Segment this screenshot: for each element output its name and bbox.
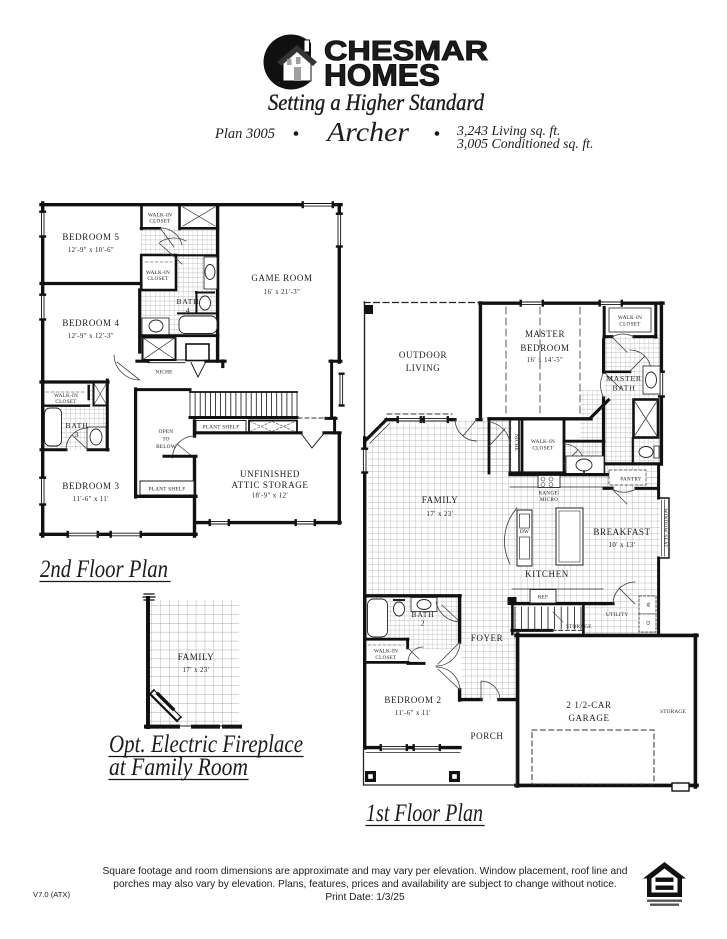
svg-text:LIVING: LIVING [406,363,441,373]
svg-text:D: D [645,621,651,625]
svg-text:GAME ROOM: GAME ROOM [251,273,312,283]
svg-text:BELOW: BELOW [156,444,176,450]
svg-text:BEDROOM: BEDROOM [520,343,569,353]
svg-text:TO: TO [162,437,169,443]
svg-text:W: W [645,602,651,607]
svg-text:17′ x 23′: 17′ x 23′ [427,511,454,518]
svg-text:PORCH: PORCH [470,731,503,741]
svg-text:BEDROOM 4: BEDROOM 4 [62,318,119,328]
svg-text:NICHE: NICHE [513,434,519,451]
svg-text:2: 2 [421,619,426,628]
svg-text:NICHE: NICHE [155,370,172,376]
svg-text:16′ x 14′-5″: 16′ x 14′-5″ [527,357,564,364]
svg-text:2nd Floor Plan: 2nd Floor Plan [40,556,168,583]
svg-text:Archer: Archer [325,117,410,147]
svg-text:BREAKFAST: BREAKFAST [593,527,650,537]
svg-text:GARAGE: GARAGE [568,713,609,723]
svg-text:11′-6″ x 11′: 11′-6″ x 11′ [73,496,109,503]
svg-text:porches may also vary by eleva: porches may also vary by elevation. Plan… [113,879,616,890]
svg-text:BATH: BATH [65,421,88,430]
svg-text:BATH: BATH [176,297,199,306]
svg-text:Plan 3005: Plan 3005 [214,126,275,142]
svg-text:12′-9″ x 10′-6″: 12′-9″ x 10′-6″ [68,247,114,254]
svg-text:17′ x 23′: 17′ x 23′ [183,667,210,674]
svg-text:WINDOW SEAT: WINDOW SEAT [662,508,668,548]
svg-text:WALK-IN: WALK-IN [618,315,642,321]
svg-text:MASTER: MASTER [606,374,642,383]
svg-text:CLOSET: CLOSET [532,446,554,452]
svg-text:WALK-IN: WALK-IN [374,649,398,655]
svg-text:at Family Room: at Family Room [109,754,248,781]
svg-text:UTILITY: UTILITY [606,612,628,618]
svg-text:CLOSET: CLOSET [149,219,171,225]
svg-text:OPEN: OPEN [159,429,174,435]
svg-text:Square footage and room dimens: Square footage and room dimensions are a… [103,866,628,877]
svg-text:STORAGE: STORAGE [660,709,686,715]
svg-text:ATTIC STORAGE: ATTIC STORAGE [232,480,309,490]
svg-text:3: 3 [75,430,80,439]
svg-text:BEDROOM 5: BEDROOM 5 [62,232,119,242]
svg-text:3,005 Conditioned sq. ft.: 3,005 Conditioned sq. ft. [456,136,593,151]
svg-text:CLOSET: CLOSET [55,399,77,405]
svg-text:KITCHEN: KITCHEN [525,569,569,579]
svg-text:1st Floor Plan: 1st Floor Plan [366,800,483,827]
svg-text:HOMES: HOMES [324,58,440,93]
svg-text:MASTER: MASTER [525,329,565,339]
svg-text:PLANT SHELF: PLANT SHELF [203,425,240,431]
svg-text:PANTRY: PANTRY [620,477,642,483]
svg-text:BATH: BATH [612,384,635,393]
svg-text:WALK-IN: WALK-IN [531,439,555,445]
svg-text:CLOSET: CLOSET [619,322,641,328]
svg-text:BEDROOM 2: BEDROOM 2 [384,695,441,705]
svg-text:FOYER: FOYER [471,633,504,643]
svg-text:2 1/2-CAR: 2 1/2-CAR [566,700,611,710]
svg-text:STORAGE: STORAGE [566,624,592,630]
svg-text:CLOSET: CLOSET [147,276,169,282]
svg-text:10′ x 13′: 10′ x 13′ [609,542,636,549]
svg-text:12′-9″ x 12′-3″: 12′-9″ x 12′-3″ [68,333,114,340]
svg-text:UNFINISHED: UNFINISHED [240,469,300,479]
svg-text:MICRO: MICRO [540,497,558,503]
svg-text:DW: DW [520,529,529,535]
svg-text:BEDROOM 3: BEDROOM 3 [62,481,119,491]
svg-text:11′-6″ x 11′: 11′-6″ x 11′ [395,710,431,717]
svg-text:RANGE/: RANGE/ [539,491,560,497]
svg-text:Setting a Higher Standard: Setting a Higher Standard [268,90,484,115]
svg-text:REF: REF [538,595,548,601]
svg-text:V7.0 (ATX): V7.0 (ATX) [33,890,70,899]
svg-text:OUTDOOR: OUTDOOR [399,350,447,360]
svg-text:18′-9″ x 12′: 18′-9″ x 12′ [252,493,289,500]
svg-text:CLOSET: CLOSET [375,655,397,661]
svg-text:FAMILY: FAMILY [422,495,459,505]
svg-text:PLANT SHELF: PLANT SHELF [149,487,186,493]
svg-text:4: 4 [186,306,191,315]
svg-text:FAMILY: FAMILY [178,652,215,662]
svg-text:16′ x 21′-3″: 16′ x 21′-3″ [264,289,301,296]
svg-text:Print Date: 1/3/25: Print Date: 1/3/25 [325,892,405,903]
